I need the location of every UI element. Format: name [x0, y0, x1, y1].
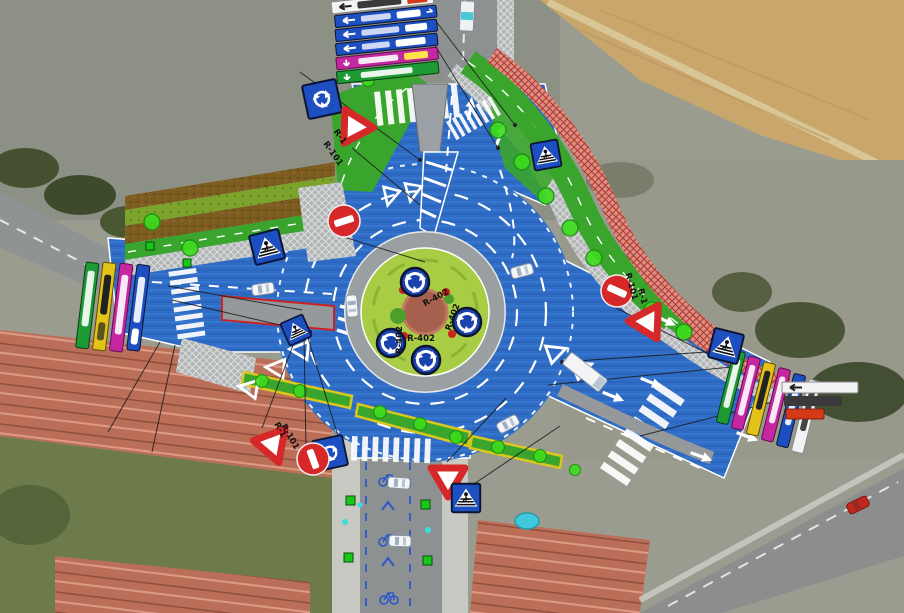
r402-label: R-402	[407, 334, 435, 344]
plan-drawing: R-402 R-402 R-402 R-402 R-1 R-101 R-101 …	[0, 0, 904, 613]
pedestrian-crossing-sign-icon	[452, 484, 481, 513]
bus	[459, 1, 475, 32]
roundabout-plan-canvas: R-402 R-402 R-402 R-402 R-1 R-101 R-101 …	[0, 0, 904, 613]
car	[251, 282, 274, 296]
pedestrian-crossing-sign-icon	[530, 139, 561, 170]
car	[389, 535, 411, 547]
r402-sign-icon	[412, 346, 440, 374]
r402-label: R-402	[395, 326, 405, 354]
r402-sign-icon	[401, 268, 429, 296]
pedestrian-crossing-sign-icon	[249, 229, 285, 265]
car	[346, 295, 359, 318]
car	[388, 477, 411, 490]
roundabout-ahead-sign-icon	[302, 79, 342, 119]
pedestrian-crossing-sign-icon	[708, 328, 744, 364]
